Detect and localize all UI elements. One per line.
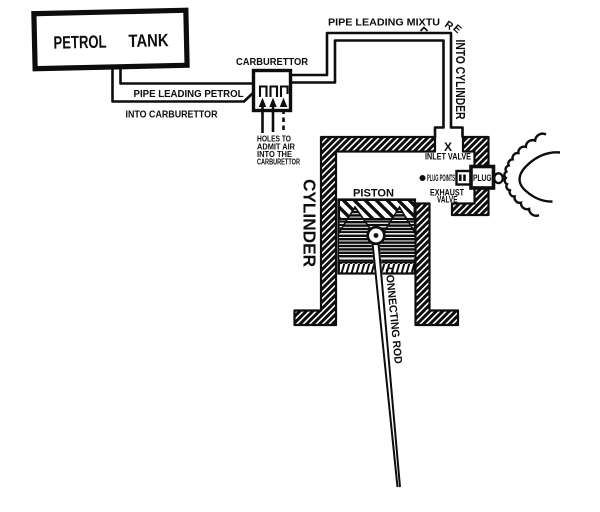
svg-text:PIPE LEADING MIXTU: PIPE LEADING MIXTU [328,17,440,29]
svg-text:PIPE LEADING PETROL: PIPE LEADING PETROL [134,88,245,100]
svg-text:PETROL: PETROL [53,32,106,53]
svg-text:INTO CARBURETTOR: INTO CARBURETTOR [126,109,218,121]
svg-text:INLET VALVE: INLET VALVE [425,152,471,162]
svg-text:PISTON: PISTON [353,188,394,200]
svg-text:VALVE: VALVE [437,195,458,205]
svg-text:INTO CYLINDER: INTO CYLINDER [453,40,467,120]
svg-text:PLUG: PLUG [473,173,492,184]
svg-text:PLUG POINTS: PLUG POINTS [427,173,455,183]
svg-text:TANK: TANK [128,30,168,51]
svg-text:CARBURETTOR: CARBURETTOR [236,56,308,68]
svg-text:CARBURETTOR: CARBURETTOR [257,158,300,167]
svg-text:CYLINDER: CYLINDER [300,179,320,267]
